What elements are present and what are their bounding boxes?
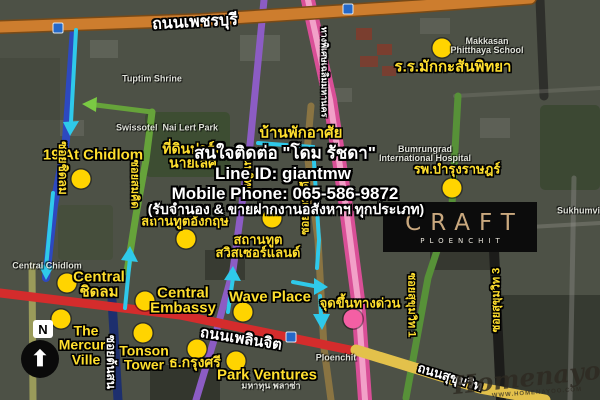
logo-sub-text: PLOENCHIT <box>415 237 505 245</box>
road-ploenchit <box>0 293 360 352</box>
road-soi-tonson <box>112 300 118 400</box>
route-turn-right <box>293 282 314 286</box>
route-to-ploenchit <box>320 296 321 314</box>
map-screenshot: ร.ร.มักกะสันพิทยา19 At Chidlomที่ดินปาร์… <box>0 0 600 400</box>
contact-services: (รับจำนอง & ขายฝากงานอสังหาฯ ทุกประเภท) <box>148 199 424 221</box>
road-somkid-link <box>88 104 152 112</box>
contact-line-id: Line ID: giantmw <box>215 164 351 184</box>
compass-arrow-icon: ⬆ <box>21 340 59 378</box>
contact-name-line: สนใจติดต่อ "โดม รัชดา" <box>194 140 376 167</box>
compass-north-label: N <box>33 320 53 338</box>
green-arrowhead <box>82 97 97 112</box>
